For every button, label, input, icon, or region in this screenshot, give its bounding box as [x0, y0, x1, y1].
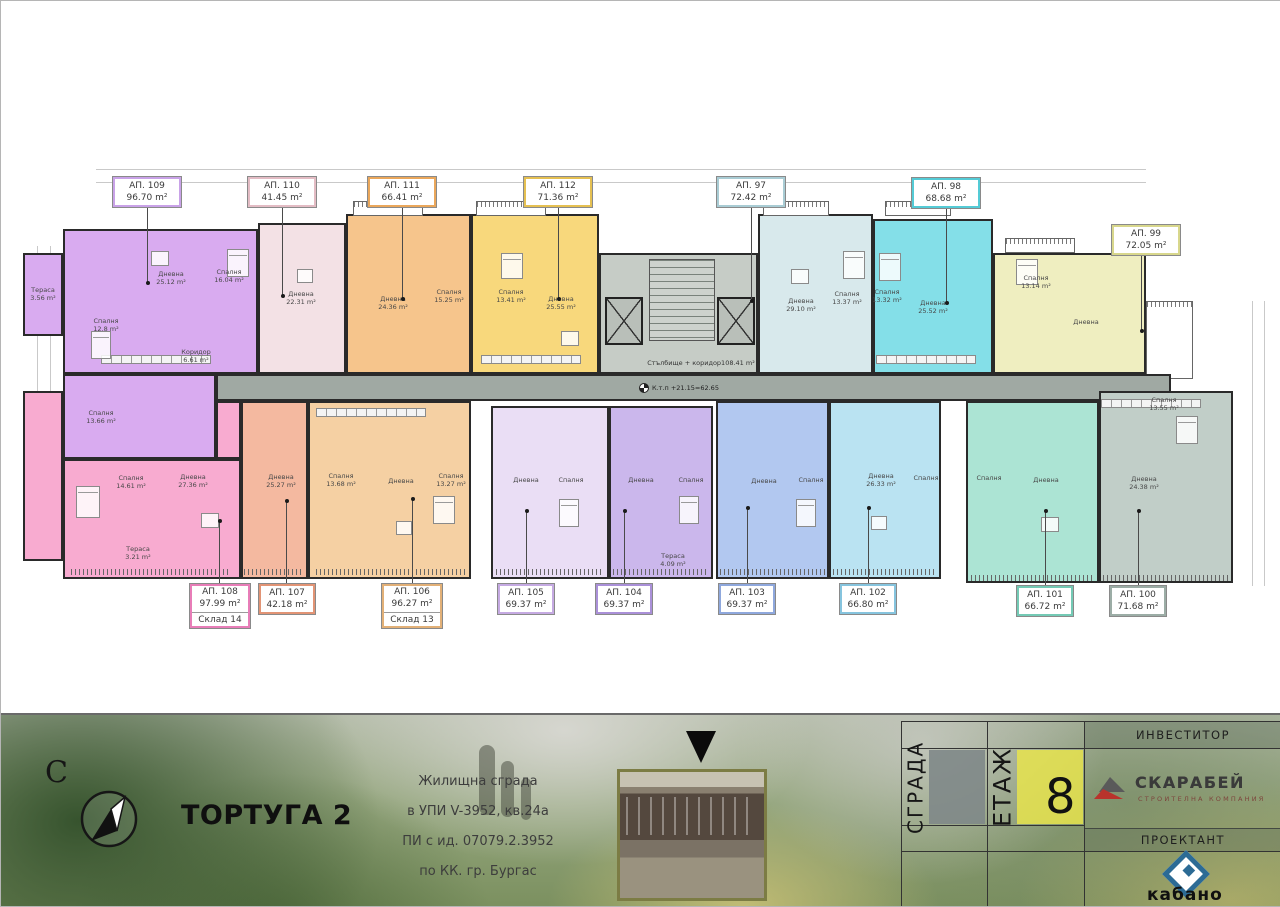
apartment-106 [308, 401, 471, 579]
room-label: Дневна [513, 477, 538, 485]
project-address: Жилищна сграда в УПИ V-3952, кв.24а ПИ с… [383, 767, 573, 887]
room-label: Спалня13.37 m² [832, 291, 862, 307]
staircase [649, 259, 715, 341]
leader-line [147, 207, 148, 283]
room-label: Спалня14.61 m² [116, 475, 146, 491]
title-block: С ТОРТУГА 2 Жилищна сграда в УПИ V-3952,… [1, 713, 1280, 907]
leader-line [526, 511, 527, 584]
leader-line [282, 207, 283, 296]
leader-line [747, 508, 748, 584]
room-label: Дневна25.27 m² [266, 474, 296, 490]
leader-line [558, 207, 559, 299]
terrace-rail [496, 569, 604, 575]
room-label: Спалня13.66 m² [86, 410, 116, 426]
bed [796, 499, 816, 527]
table-line [901, 748, 1280, 749]
leader-line [946, 208, 947, 303]
apartment-102 [829, 401, 941, 579]
apartment-99-terrace [1146, 301, 1193, 379]
building-label: СГРАДА [903, 750, 928, 824]
apartment-label-ap103: АП. 10369.37 m² [719, 584, 775, 614]
room-label: Спалня13.14 m² [1021, 275, 1051, 291]
leader-line [868, 508, 869, 584]
dimension-line [1252, 301, 1253, 586]
floor-plan-sheet: Дневна25.12 m² Спалня16.04 m² Спалня12.8… [0, 0, 1280, 907]
corridor-label: Стълбище + коридор108.41 m² [647, 359, 755, 367]
room-label: Спалня13.32 m² [872, 289, 902, 305]
bed [879, 253, 901, 281]
apartment-label-ap106: АП. 10696.27 m²Склад 13 [382, 584, 442, 628]
investor-header: ИНВЕСТИТОР [1085, 722, 1280, 748]
room-label: Дневна25.12 m² [156, 271, 186, 287]
apartment-label-ap111: АП. 11166.41 m² [368, 177, 436, 207]
room-label: Спалня16.04 m² [214, 269, 244, 285]
room-label: Дневна [388, 478, 413, 486]
room-label: Спалня15.25 m² [434, 289, 464, 305]
leader-line [402, 207, 403, 299]
project-title: ТОРТУГА 2 [181, 800, 352, 831]
leader-line [1141, 255, 1142, 331]
room-label: Дневна25.52 m² [918, 300, 948, 316]
bed [91, 331, 111, 359]
room-label: Дневна22.31 m² [286, 291, 316, 307]
room-label: Спалня13.27 m² [436, 473, 466, 489]
bed [1176, 416, 1198, 444]
leader-line [624, 511, 625, 584]
room-label: Дневна [751, 478, 776, 486]
bed [679, 496, 699, 524]
apartment-label-ap108: АП. 10897.99 m²Склад 14 [190, 584, 250, 628]
terrace-rail [1103, 575, 1229, 581]
room-label: Спалня13.68 m² [326, 473, 356, 489]
table-line [901, 851, 1084, 852]
elevator [605, 297, 643, 345]
room-label: Тераса3.56 m² [30, 287, 55, 303]
leader-line [219, 521, 220, 584]
building-thumbnail [617, 769, 767, 901]
kitchen-counter [876, 355, 976, 364]
apartment-label-ap104: АП. 10469.37 m² [596, 584, 652, 614]
balcony [1005, 238, 1075, 253]
room-label: Дневна27.36 m² [178, 474, 208, 490]
terrace-rail [971, 575, 1095, 581]
table-line [1084, 851, 1280, 852]
room-label: Дневна24.38 m² [1129, 476, 1159, 492]
room-label: Коридор6.61 m² [181, 349, 211, 365]
locator-arrow-icon [686, 731, 716, 763]
table [1041, 517, 1059, 532]
investor-subtitle: СТРОИТЕЛНА КОМПАНИЯ [1138, 795, 1266, 803]
level-mark-icon [639, 383, 649, 393]
terrace-rail [71, 569, 231, 575]
terrace-rail [316, 569, 466, 575]
apartment-label-ap105: АП. 10569.37 m² [498, 584, 554, 614]
apartment-label-ap110: АП. 11041.45 m² [248, 177, 316, 207]
apartment-label-ap107: АП. 10742.18 m² [259, 584, 315, 614]
room-label: Спалня [798, 477, 823, 485]
table [791, 269, 809, 284]
kitchen-counter [316, 408, 426, 417]
room-label: Спалня [558, 477, 583, 485]
apartment-label-ap102: АП. 10266.80 m² [840, 584, 896, 614]
room-label: Спалня13.41 m² [496, 289, 526, 305]
floor-number: 8 [1045, 769, 1076, 825]
terrace-rail [613, 569, 709, 575]
room-label: Тераса3.21 m² [125, 546, 150, 562]
apartment-112 [471, 214, 599, 374]
building-cell-fill [929, 750, 985, 824]
room-label: Спалня13.55 m² [1149, 397, 1179, 413]
room-label: Спалня [678, 477, 703, 485]
bed [433, 496, 455, 524]
apartment-103 [716, 401, 829, 579]
bed [843, 251, 865, 279]
investor-name: СКАРАБЕЙ [1135, 773, 1245, 792]
room-label: Тераса4.09 m² [660, 553, 685, 569]
room-label: Дневна29.10 m² [786, 298, 816, 314]
apartment-105 [491, 406, 609, 579]
table [396, 521, 412, 535]
skarabey-logo-icon [1094, 789, 1123, 799]
designer-header: ПРОЕКТАНТ [1085, 828, 1280, 851]
leader-line [751, 207, 752, 301]
table [297, 269, 313, 283]
designer-name: кабано [1147, 885, 1223, 905]
bed [501, 253, 523, 279]
room-label: Дневна26.33 m² [866, 473, 896, 489]
kitchen-counter [481, 355, 581, 364]
apartment-107 [241, 401, 308, 579]
dimension-line [96, 169, 1146, 170]
room-label: Спалня12.8 m² [93, 318, 118, 334]
apartment-101 [966, 401, 1099, 583]
apartment-108-upper [216, 401, 241, 459]
terrace-rail [833, 569, 937, 575]
level-mark: К.т.п +21.15=62.65 [639, 383, 719, 393]
room-label: Дневна [628, 477, 653, 485]
dimension-line [1264, 301, 1265, 586]
terrace-rail [720, 569, 825, 575]
room-label: Дневна25.55 m² [546, 296, 576, 312]
leader-line [286, 501, 287, 584]
compass-icon [63, 771, 155, 863]
apartment-label-ap99: АП. 9972.05 m² [1112, 225, 1180, 255]
leader-line [1045, 511, 1046, 586]
bed [559, 499, 579, 527]
room-label: Дневна [1073, 319, 1098, 327]
elevator [717, 297, 755, 345]
table [201, 513, 219, 528]
room-label: Дневна [1033, 477, 1058, 485]
apartment-label-ap98: АП. 9868.68 m² [912, 178, 980, 208]
apartment-108-wing [23, 391, 63, 561]
apartment-label-ap109: АП. 10996.70 m² [113, 177, 181, 207]
leader-line [1138, 511, 1139, 586]
table [561, 331, 579, 346]
apartment-100 [1099, 391, 1233, 583]
terrace-rail [244, 569, 304, 575]
apartment-label-ap112: АП. 11271.36 m² [524, 177, 592, 207]
apartment-label-ap97: АП. 9772.42 m² [717, 177, 785, 207]
floor-label: ЕТАЖ [989, 750, 1016, 824]
table [871, 516, 887, 530]
room-label: Спалня [976, 475, 1001, 483]
room-label: Спалня [913, 475, 938, 483]
table [151, 251, 169, 266]
bed [76, 486, 100, 518]
leader-line [412, 499, 413, 584]
apartment-label-ap101: АП. 10166.72 m² [1017, 586, 1073, 616]
apartment-label-ap100: АП. 10071.68 m² [1110, 586, 1166, 616]
